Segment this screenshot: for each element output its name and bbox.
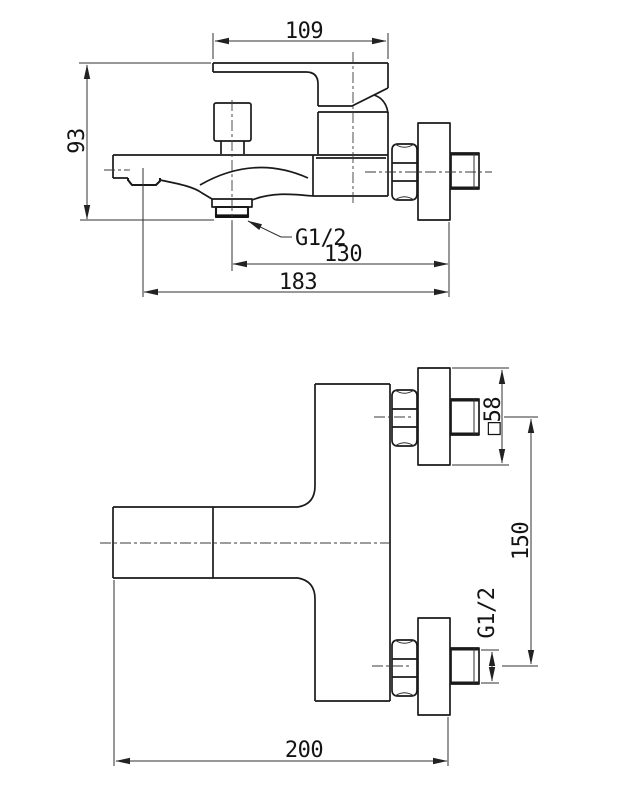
dim-label-flange: □58 — [481, 397, 506, 435]
lever-handle — [213, 63, 388, 106]
dim-label-150: 150 — [509, 522, 534, 560]
dim-label-109: 109 — [285, 19, 323, 44]
diverter-dome — [200, 168, 308, 185]
dimension-height: 93 — [65, 63, 214, 220]
body-underside — [252, 155, 388, 200]
dim-label-93: 93 — [65, 128, 90, 154]
dim-label-130: 130 — [324, 242, 362, 267]
dim-label-183: 183 — [279, 270, 317, 295]
diverter-knob-neck — [221, 141, 244, 154]
hex-nut — [392, 390, 417, 446]
spout-bar — [113, 507, 298, 578]
extension-lines — [79, 63, 214, 220]
dimension-flange-size: □58 — [452, 368, 509, 465]
riser-body — [298, 384, 390, 701]
wall-pipe — [451, 153, 479, 189]
cartridge-collar — [316, 112, 388, 196]
wall-pipe — [451, 648, 479, 684]
wall-pipe-thread — [451, 155, 479, 188]
dimension-handle-length: 109 — [213, 19, 388, 59]
dimension-total-length-plan: 200 — [114, 580, 448, 766]
handle-rear-arc — [374, 95, 388, 113]
drawing-page: 109 93 G1/2 130 183 — [0, 0, 620, 800]
wall-pipe-thread — [451, 650, 479, 683]
wall-pipe-thread — [451, 401, 479, 434]
dimension-inlet-spacing: 150 — [502, 417, 538, 666]
side-view-centerlines — [104, 52, 492, 240]
hex-nut — [392, 640, 417, 696]
wall-flange — [418, 618, 450, 715]
dim-label-inlet-thread: G1/2 — [475, 588, 500, 639]
aerator — [128, 178, 160, 185]
side-view: 109 93 G1/2 130 183 — [65, 19, 492, 297]
top-wall-connection — [392, 368, 479, 465]
plan-view: □58 150 G1/2 200 — [100, 368, 538, 766]
extension-lines — [114, 580, 448, 766]
wall-flange — [418, 123, 450, 220]
bottom-wall-connection — [392, 618, 479, 715]
extension-lines — [481, 650, 499, 683]
leader-arrow — [248, 221, 281, 237]
plan-view-centerlines — [100, 417, 412, 666]
wall-flange — [418, 368, 450, 465]
technical-drawing: 109 93 G1/2 130 183 — [0, 0, 620, 800]
dim-label-200: 200 — [285, 738, 323, 763]
wall-pipe — [451, 399, 479, 435]
diverter-knob — [214, 103, 251, 141]
